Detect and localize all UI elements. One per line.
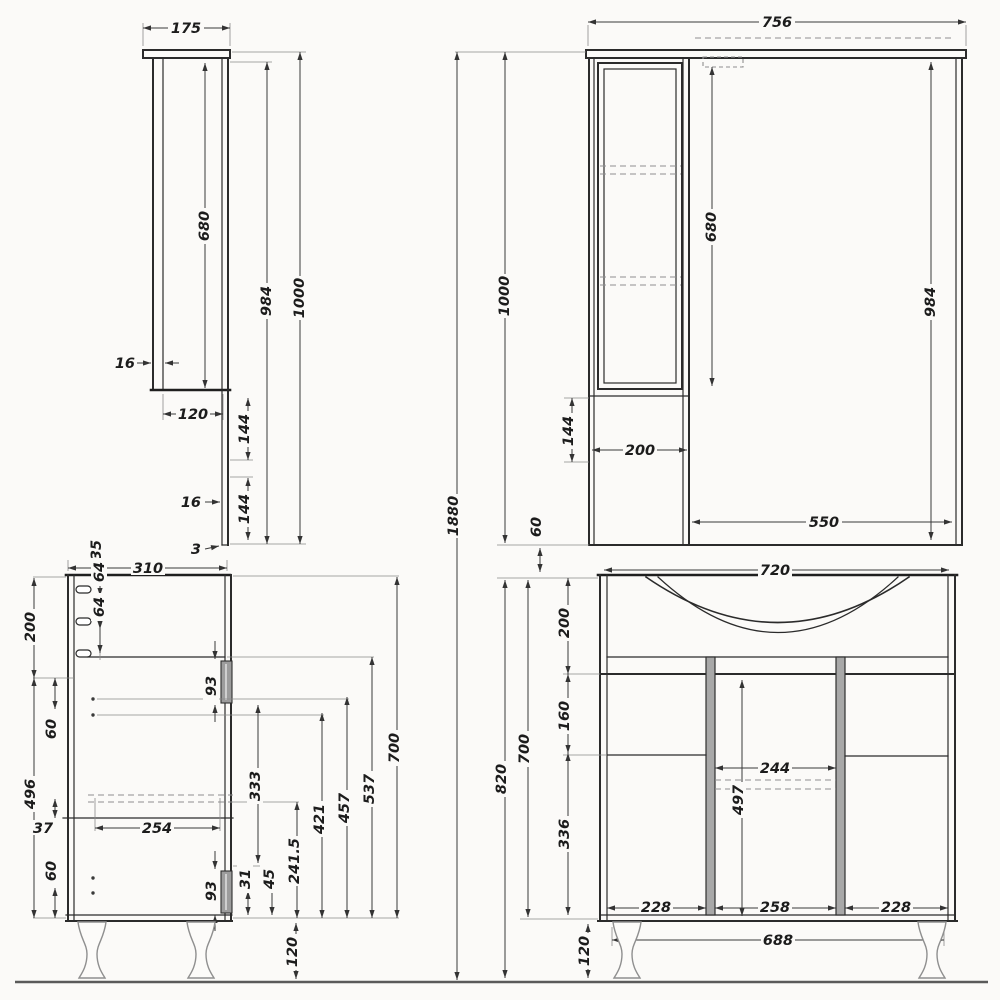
- dim-height-820: 820: [493, 761, 510, 797]
- dim-base-688: 688: [761, 932, 795, 949]
- leg-right: [187, 922, 215, 978]
- svg-text:984: 984: [923, 287, 939, 317]
- svg-text:537: 537: [362, 773, 378, 804]
- svg-text:497: 497: [731, 784, 747, 816]
- svg-text:200: 200: [23, 612, 39, 642]
- dim-back-thickness-3: 3: [191, 542, 201, 558]
- svg-text:550: 550: [809, 515, 839, 531]
- dim-31: 31: [237, 865, 254, 893]
- dim-width-720: 720: [758, 562, 792, 579]
- svg-text:310: 310: [133, 561, 163, 577]
- dim-door-thickness-16: 16: [115, 356, 135, 372]
- dim-height-984: 984: [258, 283, 275, 319]
- svg-text:333: 333: [248, 771, 264, 801]
- svg-text:200: 200: [625, 443, 655, 459]
- svg-text:241.5: 241.5: [287, 838, 303, 884]
- dim-door-mid-258: 258: [758, 899, 792, 916]
- dim-421: 421: [311, 801, 328, 837]
- svg-text:144: 144: [561, 416, 577, 446]
- svg-text:1000: 1000: [497, 276, 513, 316]
- top-board: [143, 50, 230, 58]
- mirror-cabinet-side-view: 175 680 984 1000 16 120 144 144 16 3: [115, 20, 308, 558]
- furniture-dimension-drawing: 175 680 984 1000 16 120 144 144 16 3: [0, 0, 1000, 1000]
- dim-mid-160: 160: [556, 698, 573, 734]
- svg-text:700: 700: [387, 733, 403, 763]
- dim-door-height-680: 680: [196, 208, 213, 244]
- svg-text:93: 93: [204, 676, 220, 696]
- svg-text:254: 254: [142, 821, 172, 837]
- dim-handle-93b: 93: [203, 877, 220, 905]
- svg-text:160: 160: [557, 701, 573, 731]
- dim-333: 333: [247, 768, 264, 804]
- svg-text:3: 3: [191, 542, 201, 558]
- svg-text:336: 336: [557, 819, 573, 849]
- svg-text:1000: 1000: [292, 278, 308, 318]
- dim-side-496: 496: [22, 776, 39, 812]
- hinge-3: [76, 650, 91, 657]
- svg-text:60: 60: [529, 517, 545, 537]
- dim-panel-thickness-16: 16: [181, 495, 201, 511]
- hinge-1: [76, 586, 91, 593]
- svg-text:144: 144: [237, 414, 253, 444]
- dim-width-756: 756: [759, 14, 795, 31]
- dim-height-700: 700: [386, 730, 403, 766]
- dim-total-height-1880: 1880: [445, 494, 462, 538]
- dim-inner-depth-120: 120: [176, 406, 210, 423]
- svg-text:984: 984: [259, 286, 275, 316]
- dim-door-left-228: 228: [639, 899, 673, 916]
- svg-text:64: 64: [92, 597, 108, 617]
- overall-dimensions: 1880 60: [445, 52, 545, 980]
- leg-left: [78, 922, 106, 978]
- svg-text:228: 228: [641, 900, 671, 916]
- svg-text:60: 60: [44, 861, 60, 881]
- dim-offset-60a: 60: [43, 715, 60, 743]
- dim-height-700: 700: [516, 731, 533, 767]
- technical-drawing-page: 175 680 984 1000 16 120 144 144 16 3: [0, 0, 1000, 1000]
- dim-door-height-680: 680: [703, 209, 720, 245]
- svg-text:144: 144: [237, 494, 253, 524]
- dim-537: 537: [361, 771, 378, 807]
- dim-offset-60b: 60: [43, 857, 60, 885]
- svg-text:120: 120: [285, 937, 301, 967]
- svg-text:200: 200: [557, 608, 573, 638]
- svg-text:680: 680: [197, 211, 213, 241]
- dim-hinge-gap-64a: 64: [91, 558, 108, 586]
- divider-left: [706, 657, 715, 915]
- svg-text:37: 37: [33, 821, 54, 837]
- hinge-2: [76, 618, 91, 625]
- svg-text:60: 60: [44, 719, 60, 739]
- svg-text:421: 421: [312, 804, 328, 835]
- svg-text:175: 175: [171, 21, 201, 37]
- dim-hinge-gap-64b: 64: [91, 593, 108, 621]
- dim-drawer-254: 254: [140, 820, 174, 837]
- dim-basin-200: 200: [556, 605, 573, 641]
- svg-text:457: 457: [337, 792, 353, 824]
- svg-text:244: 244: [760, 761, 790, 777]
- vanity-front-view: 720 200 160 336 244 497 228 258 228 688 …: [493, 562, 957, 978]
- dim-cabinet-width-200: 200: [623, 442, 657, 459]
- divider-right: [836, 657, 845, 915]
- svg-text:16: 16: [115, 356, 135, 372]
- svg-text:756: 756: [762, 15, 792, 31]
- svg-text:258: 258: [760, 900, 790, 916]
- dim-low-336: 336: [556, 816, 573, 852]
- dim-leg-120: 120: [284, 934, 301, 970]
- svg-text:1880: 1880: [446, 496, 462, 536]
- dim-45: 45: [261, 865, 278, 893]
- svg-text:700: 700: [517, 734, 533, 764]
- dim-height-1000: 1000: [291, 276, 308, 320]
- dim-gap-144-lower: 144: [236, 491, 253, 527]
- svg-text:720: 720: [760, 563, 790, 579]
- dim-gap-144-upper: 144: [236, 411, 253, 447]
- dim-depth-175: 175: [168, 20, 204, 37]
- dim-mirror-width-550: 550: [806, 514, 842, 531]
- dim-gap-60: 60: [528, 513, 545, 541]
- mirror-cabinet-front-view: 756 680 984 1000 144 200 550: [455, 14, 966, 545]
- leg-right: [918, 922, 946, 978]
- dim-mid-height-497: 497: [730, 782, 747, 818]
- svg-text:16: 16: [181, 495, 201, 511]
- svg-text:820: 820: [494, 764, 510, 794]
- dim-top-200: 200: [22, 609, 39, 645]
- dim-handle-93a: 93: [203, 672, 220, 700]
- dim-241-5: 241.5: [286, 836, 303, 886]
- svg-text:496: 496: [23, 779, 39, 810]
- top-board: [586, 50, 966, 58]
- svg-text:93: 93: [204, 881, 220, 901]
- leg-left: [613, 922, 641, 978]
- svg-text:64: 64: [92, 562, 108, 582]
- svg-text:120: 120: [577, 936, 593, 966]
- dim-gap-144: 144: [560, 413, 577, 449]
- dim-door-right-228: 228: [879, 899, 913, 916]
- vanity-side-view: 310 35 64 64 200 60 496 37 60 93 93 254 …: [22, 536, 403, 979]
- svg-text:688: 688: [763, 933, 793, 949]
- dim-gap-37: 37: [30, 820, 56, 837]
- svg-text:45: 45: [262, 869, 278, 890]
- dim-height-1000: 1000: [496, 274, 513, 318]
- dim-height-984: 984: [922, 284, 939, 320]
- svg-text:680: 680: [704, 212, 720, 242]
- dim-depth-310: 310: [131, 560, 165, 577]
- svg-text:31: 31: [238, 869, 254, 889]
- mirror-door: [598, 63, 682, 389]
- svg-text:228: 228: [881, 900, 911, 916]
- dim-457: 457: [336, 790, 353, 826]
- svg-text:120: 120: [178, 407, 208, 423]
- basin-inner: [658, 577, 898, 633]
- svg-text:35: 35: [89, 540, 105, 560]
- dim-leg-120: 120: [576, 933, 593, 969]
- dim-mid-width-244: 244: [758, 760, 792, 777]
